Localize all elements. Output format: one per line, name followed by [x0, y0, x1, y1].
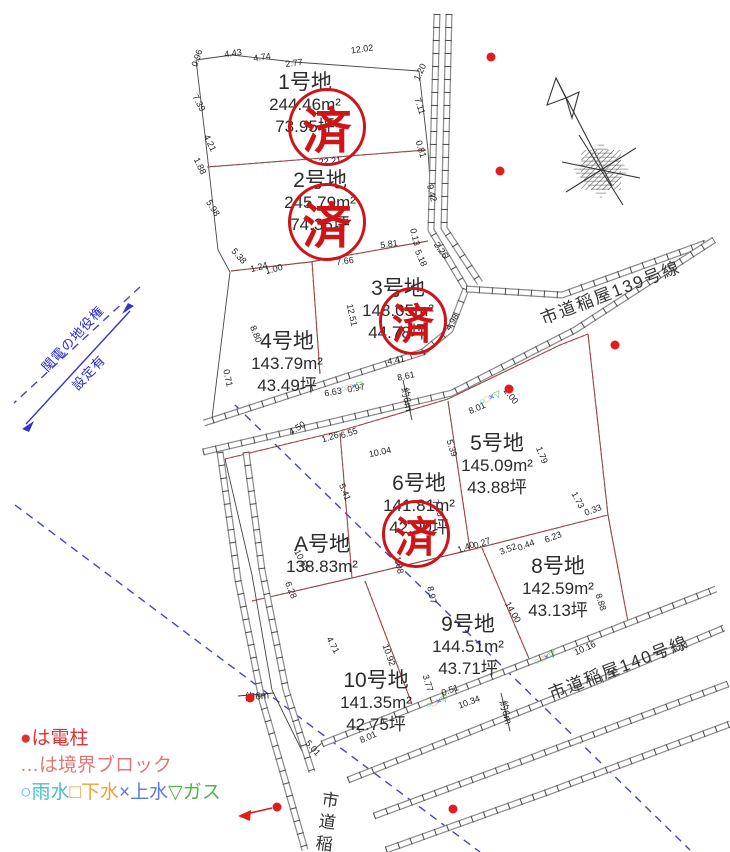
- plot-label-10号地: 10号地141.35m²42.75坪: [340, 670, 412, 736]
- utility-pole-dot: [273, 803, 282, 812]
- plot-area: 141.35m²: [340, 692, 412, 714]
- legend-utility-上水: ×上水: [119, 782, 168, 803]
- legend-utilities-line: ○雨水□下水×上水▽ガス: [20, 779, 221, 806]
- legend-boundary-line: …は境界ブロック: [20, 752, 221, 779]
- utility-pole-dot: [449, 805, 458, 814]
- north-arrow: [547, 78, 640, 205]
- legend-utility-雨水: ○雨水: [20, 782, 69, 803]
- utility-pole-dot: [487, 53, 496, 62]
- plot-label-5号地: 5号地145.09m²43.88坪: [461, 433, 533, 499]
- utility-pole-dot: [246, 694, 255, 703]
- site-plan: ●は電柱 …は境界ブロック ○雨水□下水×上水▽ガス 関電の地役権 設定有 1号…: [0, 0, 730, 852]
- plot-name: 8号地: [522, 556, 594, 578]
- plot-name: 9号地: [432, 614, 504, 636]
- plot-tsubo: 43.71坪: [432, 658, 504, 680]
- road-edge-line: [220, 452, 305, 850]
- utility-pole-dot: [505, 385, 514, 394]
- plot-name: 6号地: [383, 473, 455, 495]
- plot-tsubo: 43.13坪: [522, 600, 594, 622]
- utility-pole-dot: [611, 341, 620, 350]
- plot-tsubo: 43.88坪: [461, 477, 533, 499]
- legend-pole-line: ●は電柱: [20, 725, 221, 752]
- plot-area: 143.79m²: [251, 353, 323, 375]
- plot-name: 5号地: [461, 433, 533, 455]
- sold-stamp: 済: [288, 183, 366, 261]
- plot-label-8号地: 8号地142.59m²43.13坪: [522, 556, 594, 622]
- utility-pole-dot: [496, 167, 505, 176]
- road-lines: [203, 14, 730, 850]
- legend: ●は電柱 …は境界ブロック ○雨水□下水×上水▽ガス: [20, 725, 221, 806]
- road-edge-line: [220, 452, 305, 850]
- plot-label-9号地: 9号地144.51m²43.71坪: [432, 614, 504, 680]
- plot-name: 10号地: [340, 670, 412, 692]
- plot-area: 145.09m²: [461, 455, 533, 477]
- pole-pointer-arrow: [238, 808, 272, 821]
- plot-tsubo: 43.49坪: [251, 375, 323, 397]
- road-edge-line: [246, 452, 312, 772]
- legend-utility-下水: □下水: [69, 782, 118, 803]
- sold-stamp: 済: [379, 287, 447, 355]
- road-edge-line: [444, 14, 480, 283]
- sold-stamp: 済: [288, 88, 366, 166]
- sold-stamp: 済: [382, 500, 450, 568]
- plot-area: 142.59m²: [522, 578, 594, 600]
- legend-utility-ガス: ▽ガス: [168, 782, 221, 803]
- plot-area: 144.51m²: [432, 636, 504, 658]
- road-edge-line: [220, 452, 305, 850]
